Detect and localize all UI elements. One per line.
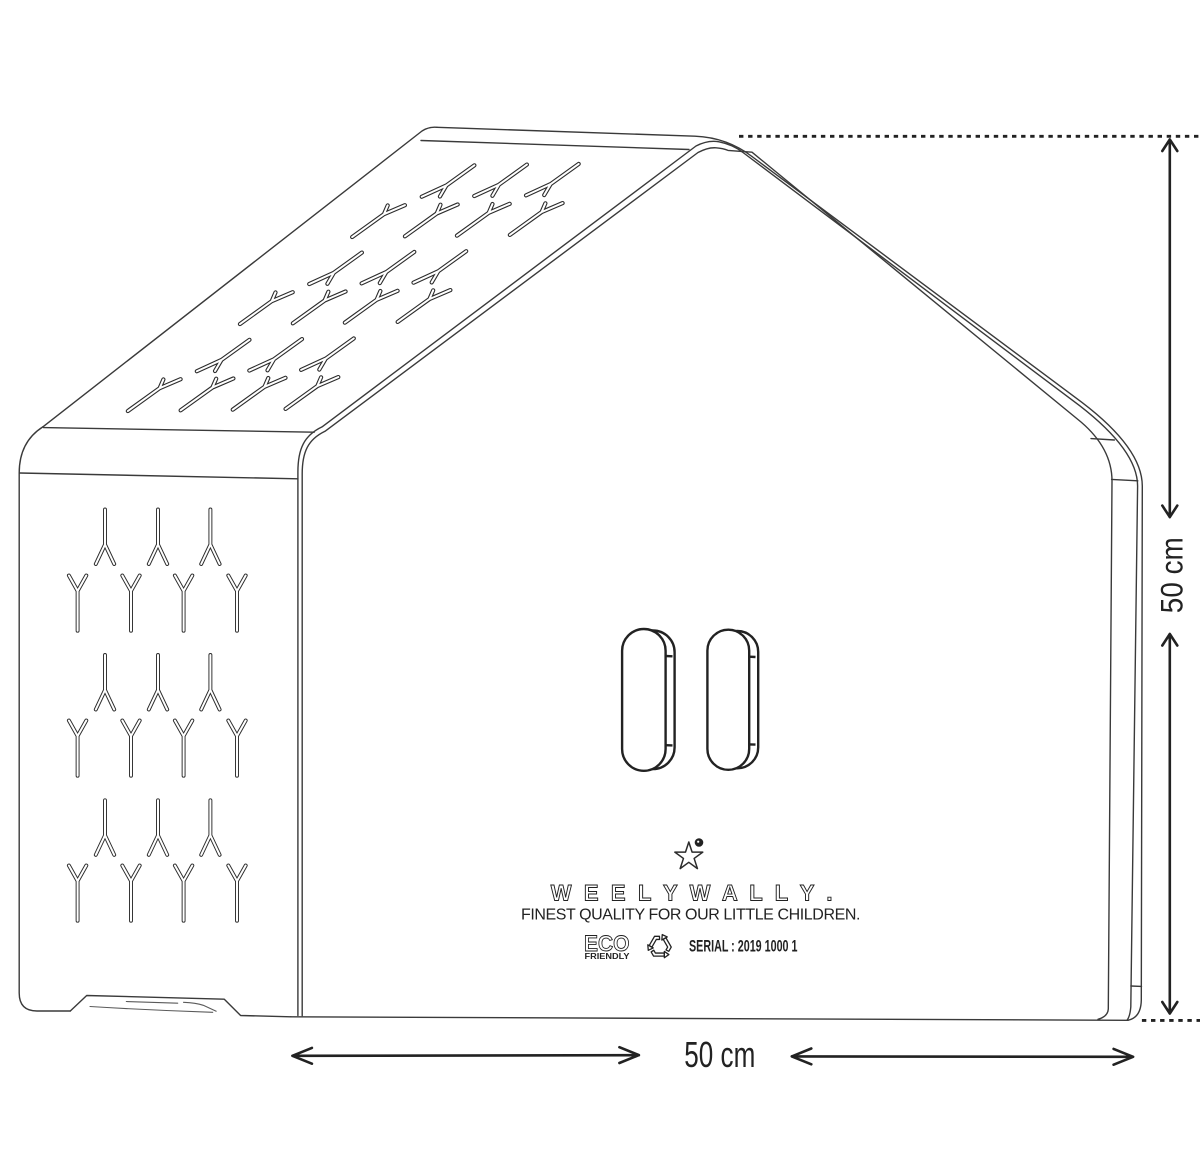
- svg-text:W E E L Y W A L L Y .: W E E L Y W A L L Y .: [551, 881, 833, 906]
- svg-text:50 cm: 50 cm: [684, 1034, 755, 1075]
- svg-text:SERIAL : 2019 1000 1: SERIAL : 2019 1000 1: [689, 938, 798, 956]
- svg-text:50 cm: 50 cm: [1154, 537, 1190, 613]
- svg-text:FINEST QUALITY FOR OUR LITTLE: FINEST QUALITY FOR OUR LITTLE CHILDREN.: [521, 906, 860, 923]
- svg-text:FRIENDLY: FRIENDLY: [585, 952, 631, 961]
